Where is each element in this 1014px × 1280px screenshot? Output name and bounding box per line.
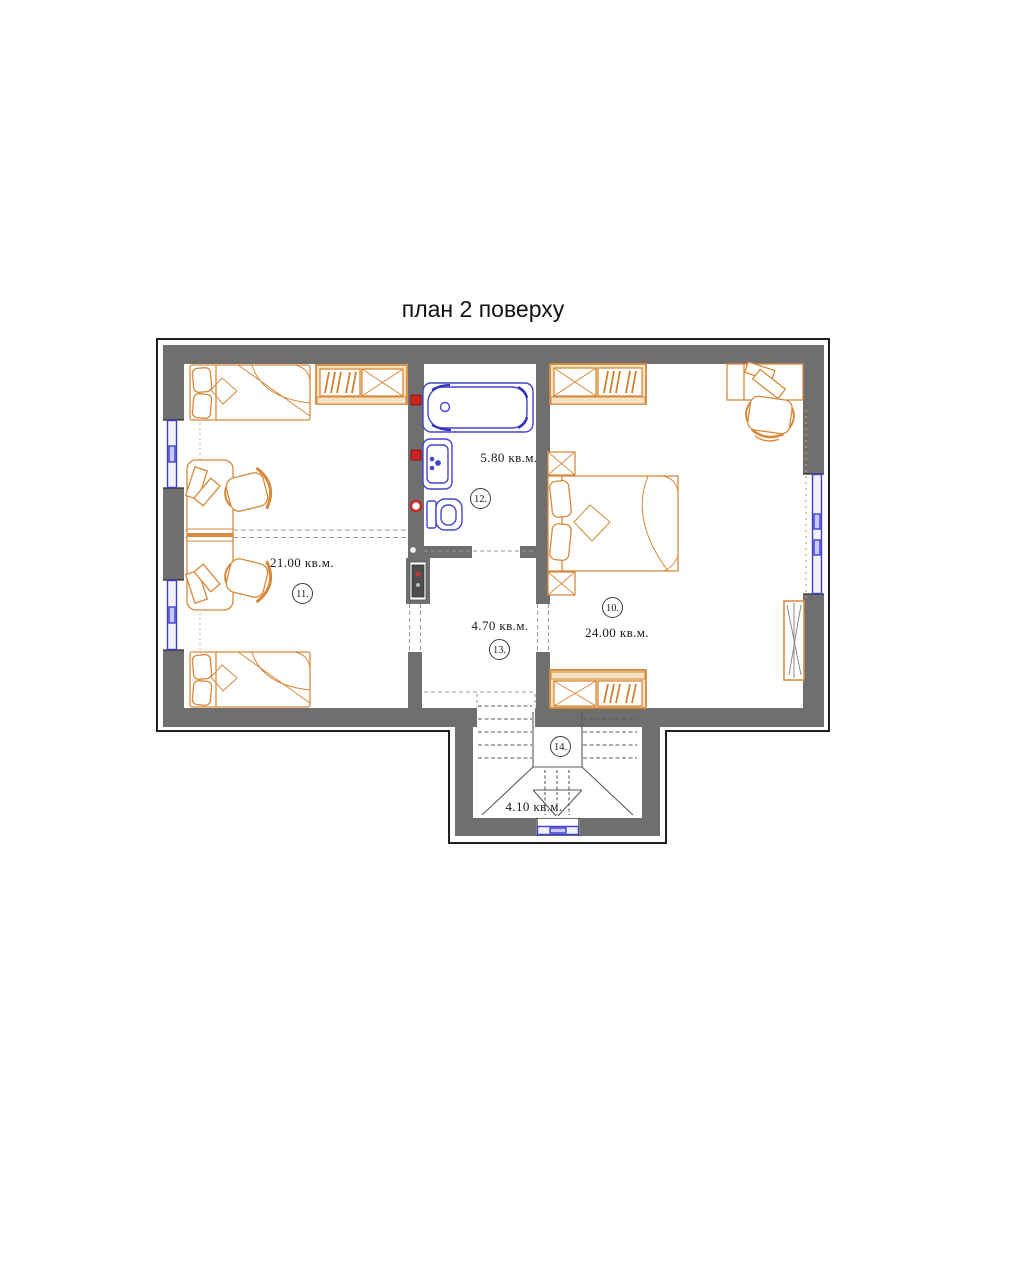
room11-number-badge: 11. <box>292 583 313 604</box>
wardrobe-room11 <box>316 365 407 404</box>
double-bed <box>548 452 678 595</box>
room10-number-badge: 10. <box>602 597 623 618</box>
office-chair <box>743 395 797 444</box>
window-stairs <box>538 827 579 835</box>
sink <box>423 439 452 489</box>
bathroom-number-badge: 12. <box>470 488 491 509</box>
bathtub <box>423 383 533 432</box>
wardrobe-room10-bottom <box>550 670 646 708</box>
room10-area-label: 24.00 кв.м. <box>585 625 649 641</box>
room10-furniture <box>548 362 804 708</box>
room11-area-label: 21.00 кв.м. <box>270 555 334 571</box>
window-left-bottom <box>168 581 177 650</box>
stairs-number-badge: 14. <box>550 736 571 757</box>
desk-room10 <box>727 362 803 444</box>
single-bed-top <box>190 365 310 420</box>
window-right <box>813 475 822 594</box>
hall-area-label: 4.70 кв.м. <box>471 618 528 634</box>
toilet <box>427 499 462 530</box>
wardrobe-room10-top <box>550 364 646 404</box>
room11-furniture <box>186 365 407 707</box>
stairs-area-label: 4.10 кв.м. <box>505 799 562 815</box>
bathroom-area-label: 5.80 кв.м. <box>480 450 537 466</box>
plan-title: план 2 поверху <box>402 296 564 323</box>
single-bed-bottom <box>190 652 310 707</box>
window-left-top <box>168 421 177 488</box>
double-desk <box>186 460 275 610</box>
floor-plan-drawing <box>0 0 1014 1280</box>
floor-plan-page: план 2 поверху 21.00 кв.м. 11. 5.80 кв.м… <box>0 0 1014 1280</box>
drying-rack <box>784 601 804 680</box>
hall-number-badge: 13. <box>489 639 510 660</box>
